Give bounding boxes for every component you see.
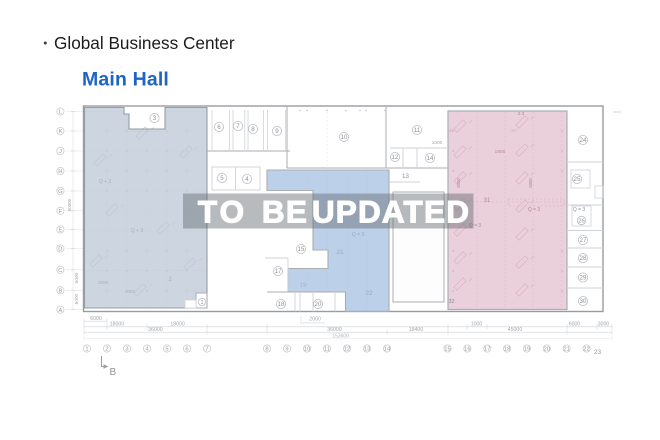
svg-text:9: 9 bbox=[285, 347, 288, 353]
svg-text:6000: 6000 bbox=[90, 316, 102, 322]
svg-text:25: 25 bbox=[574, 176, 581, 183]
svg-text:B: B bbox=[58, 288, 62, 294]
svg-text:C: C bbox=[58, 268, 62, 274]
svg-text:G: G bbox=[58, 189, 63, 195]
svg-text:12: 12 bbox=[344, 347, 350, 353]
svg-text:14: 14 bbox=[384, 347, 391, 353]
svg-text:29: 29 bbox=[580, 275, 587, 282]
svg-text:Q + 3: Q + 3 bbox=[99, 179, 112, 185]
svg-text:9: 9 bbox=[275, 128, 279, 135]
svg-text:1: 1 bbox=[85, 347, 88, 353]
svg-text:3000: 3000 bbox=[598, 321, 610, 327]
svg-text:2: 2 bbox=[105, 347, 108, 353]
svg-text:11: 11 bbox=[324, 347, 330, 353]
svg-text:BE: BE bbox=[262, 194, 308, 230]
svg-text:7: 7 bbox=[205, 347, 208, 353]
svg-text:Q + 3: Q + 3 bbox=[131, 228, 144, 234]
svg-text:18000: 18000 bbox=[170, 321, 185, 327]
svg-text:A: A bbox=[58, 308, 62, 314]
svg-text:Q = 3: Q = 3 bbox=[528, 207, 541, 213]
svg-text:18: 18 bbox=[278, 301, 285, 308]
svg-text:21: 21 bbox=[336, 249, 344, 256]
svg-text:10: 10 bbox=[341, 134, 348, 141]
svg-text:15: 15 bbox=[298, 246, 305, 253]
svg-text:22: 22 bbox=[583, 347, 589, 353]
svg-text:17: 17 bbox=[275, 268, 282, 275]
svg-text:45°: 45° bbox=[449, 128, 456, 133]
svg-text:19: 19 bbox=[300, 282, 307, 289]
svg-text:2000: 2000 bbox=[125, 289, 136, 294]
svg-text:Global Business Center: Global Business Center bbox=[54, 33, 235, 53]
svg-text:36000: 36000 bbox=[327, 327, 342, 333]
svg-text:6000: 6000 bbox=[569, 321, 581, 327]
svg-text:22: 22 bbox=[365, 290, 373, 297]
svg-text:153600: 153600 bbox=[332, 333, 349, 339]
svg-text:45000: 45000 bbox=[508, 327, 523, 333]
svg-text:3: 3 bbox=[125, 347, 128, 353]
svg-text:6000: 6000 bbox=[74, 293, 80, 304]
svg-text:Main Hall: Main Hall bbox=[82, 69, 169, 91]
svg-text:2000: 2000 bbox=[309, 317, 321, 323]
svg-text:B: B bbox=[110, 367, 117, 378]
svg-text:28: 28 bbox=[580, 255, 587, 262]
svg-text:4: 4 bbox=[245, 176, 249, 183]
svg-text:H: H bbox=[58, 169, 62, 175]
svg-text:UPDATED: UPDATED bbox=[312, 194, 470, 230]
svg-text:18000: 18000 bbox=[110, 321, 125, 327]
svg-text:30: 30 bbox=[580, 298, 587, 305]
svg-text:23: 23 bbox=[594, 349, 602, 356]
svg-text:13: 13 bbox=[402, 173, 409, 180]
svg-text:17: 17 bbox=[484, 347, 490, 353]
svg-text:1: 1 bbox=[201, 300, 204, 306]
svg-text:K: K bbox=[58, 129, 62, 135]
svg-text:21: 21 bbox=[563, 347, 569, 353]
svg-text:20: 20 bbox=[315, 301, 322, 308]
svg-text:8: 8 bbox=[251, 126, 255, 133]
svg-text:Q = 3: Q = 3 bbox=[352, 232, 365, 238]
svg-text:6000: 6000 bbox=[456, 178, 461, 188]
svg-text:32: 32 bbox=[448, 299, 454, 305]
svg-text:1800: 1800 bbox=[495, 149, 506, 155]
svg-text:F: F bbox=[59, 209, 63, 215]
svg-text:6: 6 bbox=[217, 124, 221, 131]
svg-text:20: 20 bbox=[544, 347, 550, 353]
svg-text:15: 15 bbox=[444, 347, 450, 353]
svg-text:31: 31 bbox=[484, 198, 491, 204]
svg-text:26: 26 bbox=[578, 219, 584, 225]
svg-text:2.3: 2.3 bbox=[518, 111, 525, 117]
svg-text:60000: 60000 bbox=[67, 198, 72, 211]
svg-text:36000: 36000 bbox=[148, 327, 163, 333]
svg-text:Q = 3: Q = 3 bbox=[573, 207, 586, 213]
svg-text:6000: 6000 bbox=[528, 178, 533, 188]
svg-text:11: 11 bbox=[414, 127, 421, 134]
svg-text:18: 18 bbox=[504, 347, 510, 353]
svg-text:D: D bbox=[58, 247, 62, 253]
svg-text:6: 6 bbox=[185, 347, 188, 353]
svg-text:16: 16 bbox=[464, 347, 470, 353]
svg-text:27: 27 bbox=[580, 237, 587, 244]
svg-text:2500: 2500 bbox=[98, 280, 109, 285]
svg-text:J: J bbox=[59, 149, 62, 155]
svg-text:5: 5 bbox=[165, 347, 168, 353]
svg-text:3: 3 bbox=[153, 115, 157, 122]
svg-text:6000: 6000 bbox=[74, 272, 80, 283]
svg-text:E: E bbox=[58, 228, 62, 234]
svg-text:5: 5 bbox=[220, 175, 224, 182]
svg-text:1000: 1000 bbox=[432, 140, 443, 146]
svg-text:8: 8 bbox=[265, 347, 268, 353]
svg-text:14: 14 bbox=[427, 155, 434, 162]
svg-text:10: 10 bbox=[304, 347, 310, 353]
svg-text:7: 7 bbox=[236, 123, 240, 130]
svg-text:18400: 18400 bbox=[409, 327, 424, 333]
svg-text:TO: TO bbox=[198, 194, 247, 230]
svg-text:19: 19 bbox=[524, 347, 530, 353]
svg-text:13: 13 bbox=[364, 347, 370, 353]
svg-text:24: 24 bbox=[580, 137, 587, 144]
svg-text:1000: 1000 bbox=[471, 321, 483, 327]
svg-text:45°: 45° bbox=[511, 128, 518, 133]
svg-text:12: 12 bbox=[392, 154, 399, 161]
